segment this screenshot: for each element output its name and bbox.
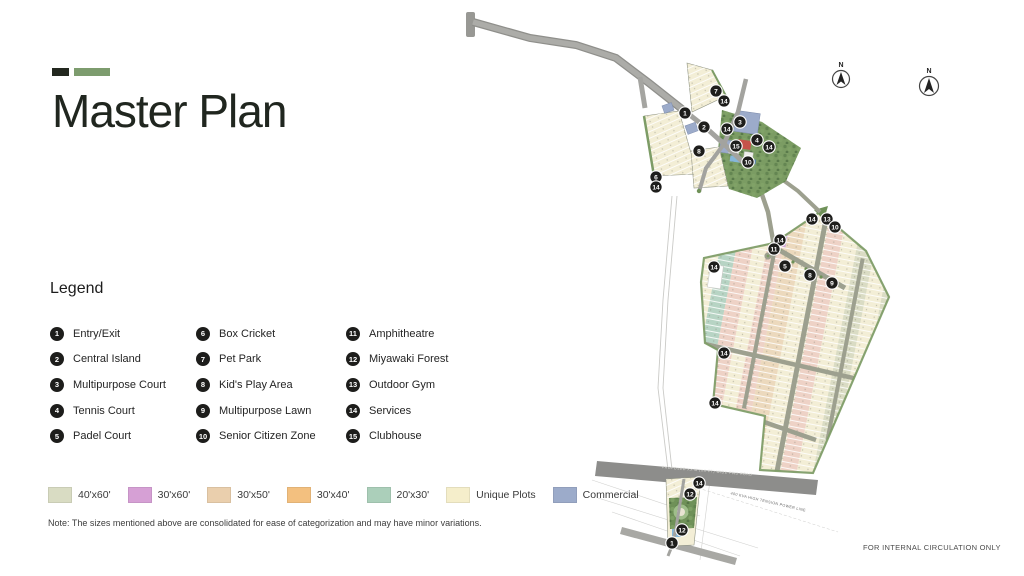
legend-item-label: Entry/Exit [73, 328, 120, 340]
legend-item-label: Tennis Court [73, 405, 135, 417]
compass: N [920, 68, 939, 96]
map-marker-number: 13 [823, 216, 831, 223]
plot-type-swatch [48, 487, 72, 503]
compass-n-label: N [926, 68, 931, 75]
legend-item: 9Multipurpose Lawn [196, 404, 346, 418]
legend-item: 12Miyawaki Forest [346, 352, 448, 366]
legend-item-label: Multipurpose Lawn [219, 405, 311, 417]
plot-type: 20'x30' [367, 487, 430, 503]
legend-item-label: Padel Court [73, 430, 131, 442]
legend-item-number: 9 [196, 404, 210, 418]
legend-item-number: 15 [346, 429, 360, 443]
accent-bar-dark [52, 68, 69, 76]
map-marker-number: 3 [738, 119, 742, 126]
map-marker-number: 9 [830, 280, 834, 287]
compass: N [833, 62, 850, 88]
compass-n-label: N [838, 62, 843, 69]
map-marker-number: 4 [755, 137, 759, 144]
legend-item-number: 3 [50, 378, 64, 392]
legend-item: 8Kid's Play Area [196, 378, 346, 392]
master-plan-page: 400 KVA HIGH TENSION POWER LINE PROPOSED… [0, 0, 1024, 576]
legend-item: 6Box Cricket [196, 327, 346, 341]
legend-item: 13Outdoor Gym [346, 378, 448, 392]
plot-type: Commercial [553, 487, 639, 503]
plot-type: 30'x40' [287, 487, 350, 503]
legend-item: 15Clubhouse [346, 429, 448, 443]
map-marker-number: 7 [714, 88, 718, 95]
legend-item: 4Tennis Court [50, 404, 196, 418]
map-marker-number: 5 [783, 263, 787, 270]
map-marker-number: 14 [765, 144, 773, 151]
legend-item-number: 12 [346, 352, 360, 366]
legend-item-number: 8 [196, 378, 210, 392]
legend-item-label: Senior Citizen Zone [219, 430, 316, 442]
map-marker-number: 10 [744, 159, 752, 166]
survey-lines [658, 196, 677, 470]
plot-type: 40'x60' [48, 487, 111, 503]
legend-item-number: 6 [196, 327, 210, 341]
power-line-label: 400 KVA HIGH TENSION POWER LINE [730, 491, 806, 512]
legend-item-label: Kid's Play Area [219, 379, 293, 391]
plot-type-swatch [553, 487, 577, 503]
legend-item-label: Services [369, 405, 411, 417]
plot-type-label: Commercial [583, 489, 639, 501]
plot-type: 30'x50' [207, 487, 270, 503]
legend-item-label: Pet Park [219, 353, 261, 365]
legend-item: 10Senior Citizen Zone [196, 429, 346, 443]
map-marker-number: 8 [697, 148, 701, 155]
approach-road [466, 12, 687, 113]
page-title: Master Plan [52, 84, 286, 138]
legend-item-number: 10 [196, 429, 210, 443]
legend-item-number: 1 [50, 327, 64, 341]
map-marker-number: 14 [652, 184, 660, 191]
map-marker-number: 15 [732, 143, 740, 150]
legend-item-label: Amphitheatre [369, 328, 434, 340]
plot-type-label: 30'x60' [158, 489, 191, 501]
plot-type-label: 40'x60' [78, 489, 111, 501]
plot-type-label: 30'x40' [317, 489, 350, 501]
plot-type-swatch [128, 487, 152, 503]
map-marker-number: 1 [683, 110, 687, 117]
map-marker-number: 11 [771, 246, 778, 253]
legend-item-number: 14 [346, 404, 360, 418]
legend-item: 1Entry/Exit [50, 327, 196, 341]
map-marker-number: 14 [710, 264, 718, 271]
legend-item-number: 4 [50, 404, 64, 418]
plot-type-label: Unique Plots [476, 489, 536, 501]
legend-item: 3Multipurpose Court [50, 378, 196, 392]
map-marker-number: 12 [686, 491, 694, 498]
plot-type: 30'x60' [128, 487, 191, 503]
plot-type-swatch [287, 487, 311, 503]
legend-heading: Legend [50, 280, 103, 298]
legend-item-label: Miyawaki Forest [369, 353, 448, 365]
map-marker-number: 14 [720, 350, 728, 357]
legend-list: 1Entry/Exit2Central Island3Multipurpose … [50, 321, 448, 449]
legend-item-number: 7 [196, 352, 210, 366]
map-marker-number: 10 [831, 224, 839, 231]
circulation-note: FOR INTERNAL CIRCULATION ONLY [863, 543, 1001, 552]
legend-item: 14Services [346, 404, 448, 418]
plot-type-label: 30'x50' [237, 489, 270, 501]
legend-item: 7Pet Park [196, 352, 346, 366]
legend-item-label: Outdoor Gym [369, 379, 435, 391]
plot-type-swatch [367, 487, 391, 503]
map-marker-number: 14 [723, 126, 731, 133]
legend-item-label: Central Island [73, 353, 141, 365]
legend-item-number: 13 [346, 378, 360, 392]
legend-item-label: Clubhouse [369, 430, 422, 442]
map-marker-number: 14 [720, 98, 728, 105]
map-marker-number: 12 [678, 527, 686, 534]
legend-item-label: Multipurpose Court [73, 379, 166, 391]
map-marker-number: 14 [808, 216, 816, 223]
plot-type-label: 20'x30' [397, 489, 430, 501]
legend-item-label: Box Cricket [219, 328, 275, 340]
map-marker-number: 14 [711, 400, 719, 407]
map-marker-number: 2 [702, 124, 706, 131]
legend-item-number: 11 [346, 327, 360, 341]
map-marker-number: 14 [695, 480, 703, 487]
map-marker-number: 8 [808, 272, 812, 279]
legend-item: 5Padel Court [50, 429, 196, 443]
note-text: Note: The sizes mentioned above are cons… [48, 518, 482, 528]
plot-type-swatch [207, 487, 231, 503]
legend-item: 11Amphitheatre [346, 327, 448, 341]
plot-type: Unique Plots [446, 487, 536, 503]
legend-item-number: 5 [50, 429, 64, 443]
legend-item-number: 2 [50, 352, 64, 366]
plot-type-legend: 40'x60'30'x60'30'x50'30'x40'20'x30'Uniqu… [48, 487, 639, 503]
map-marker-number: 1 [670, 540, 674, 547]
plot-type-swatch [446, 487, 470, 503]
legend-item: 2Central Island [50, 352, 196, 366]
accent-bar-green [74, 68, 110, 76]
